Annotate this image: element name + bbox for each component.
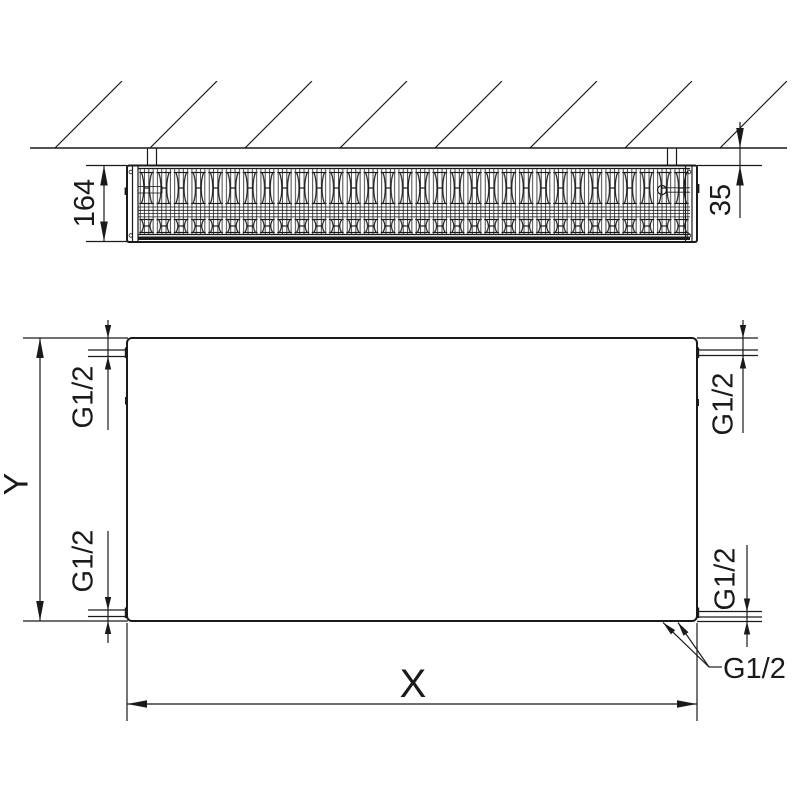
thread-label-top-left: G1/2	[68, 366, 100, 429]
thread-dimension-top-left: G1/2	[68, 320, 128, 430]
front-view: Y X G1/2 G1/2	[0, 320, 786, 721]
depth-label: 164	[69, 179, 101, 227]
thread-label-bottom-left: G1/2	[68, 530, 100, 593]
wall-gap-label: 35	[705, 184, 737, 216]
top-view: 164 35	[30, 81, 787, 242]
thread-label-bottom-pair: G1/2	[723, 653, 786, 685]
thread-dimension-bottom-right: G1/2	[697, 545, 762, 647]
side-tab-right	[697, 184, 700, 193]
thread-leader-bottom-pair: G1/2	[663, 623, 786, 686]
thread-label-bottom-right: G1/2	[710, 548, 742, 611]
width-label: X	[400, 662, 427, 706]
connection-tabs	[125, 348, 699, 619]
thread-dimension-top-right: G1/2	[697, 320, 758, 435]
dimension-width-X: X	[127, 623, 697, 721]
wall-hatching	[30, 81, 787, 148]
dimension-depth-164: 164	[69, 166, 127, 242]
mounting-bracket-left	[148, 148, 157, 166]
drawing-canvas: 164 35 Y	[0, 0, 800, 800]
dimension-height-Y: Y	[0, 338, 128, 621]
thread-dimension-bottom-left: G1/2	[68, 530, 128, 643]
mounting-bracket-right	[668, 148, 677, 166]
thread-label-top-right: G1/2	[708, 373, 740, 436]
convector-fins	[138, 169, 690, 241]
side-tab-left	[125, 188, 128, 196]
radiator-front-panel	[127, 338, 697, 621]
radiator-technical-drawing: 164 35 Y	[0, 0, 800, 800]
height-label: Y	[0, 473, 36, 496]
